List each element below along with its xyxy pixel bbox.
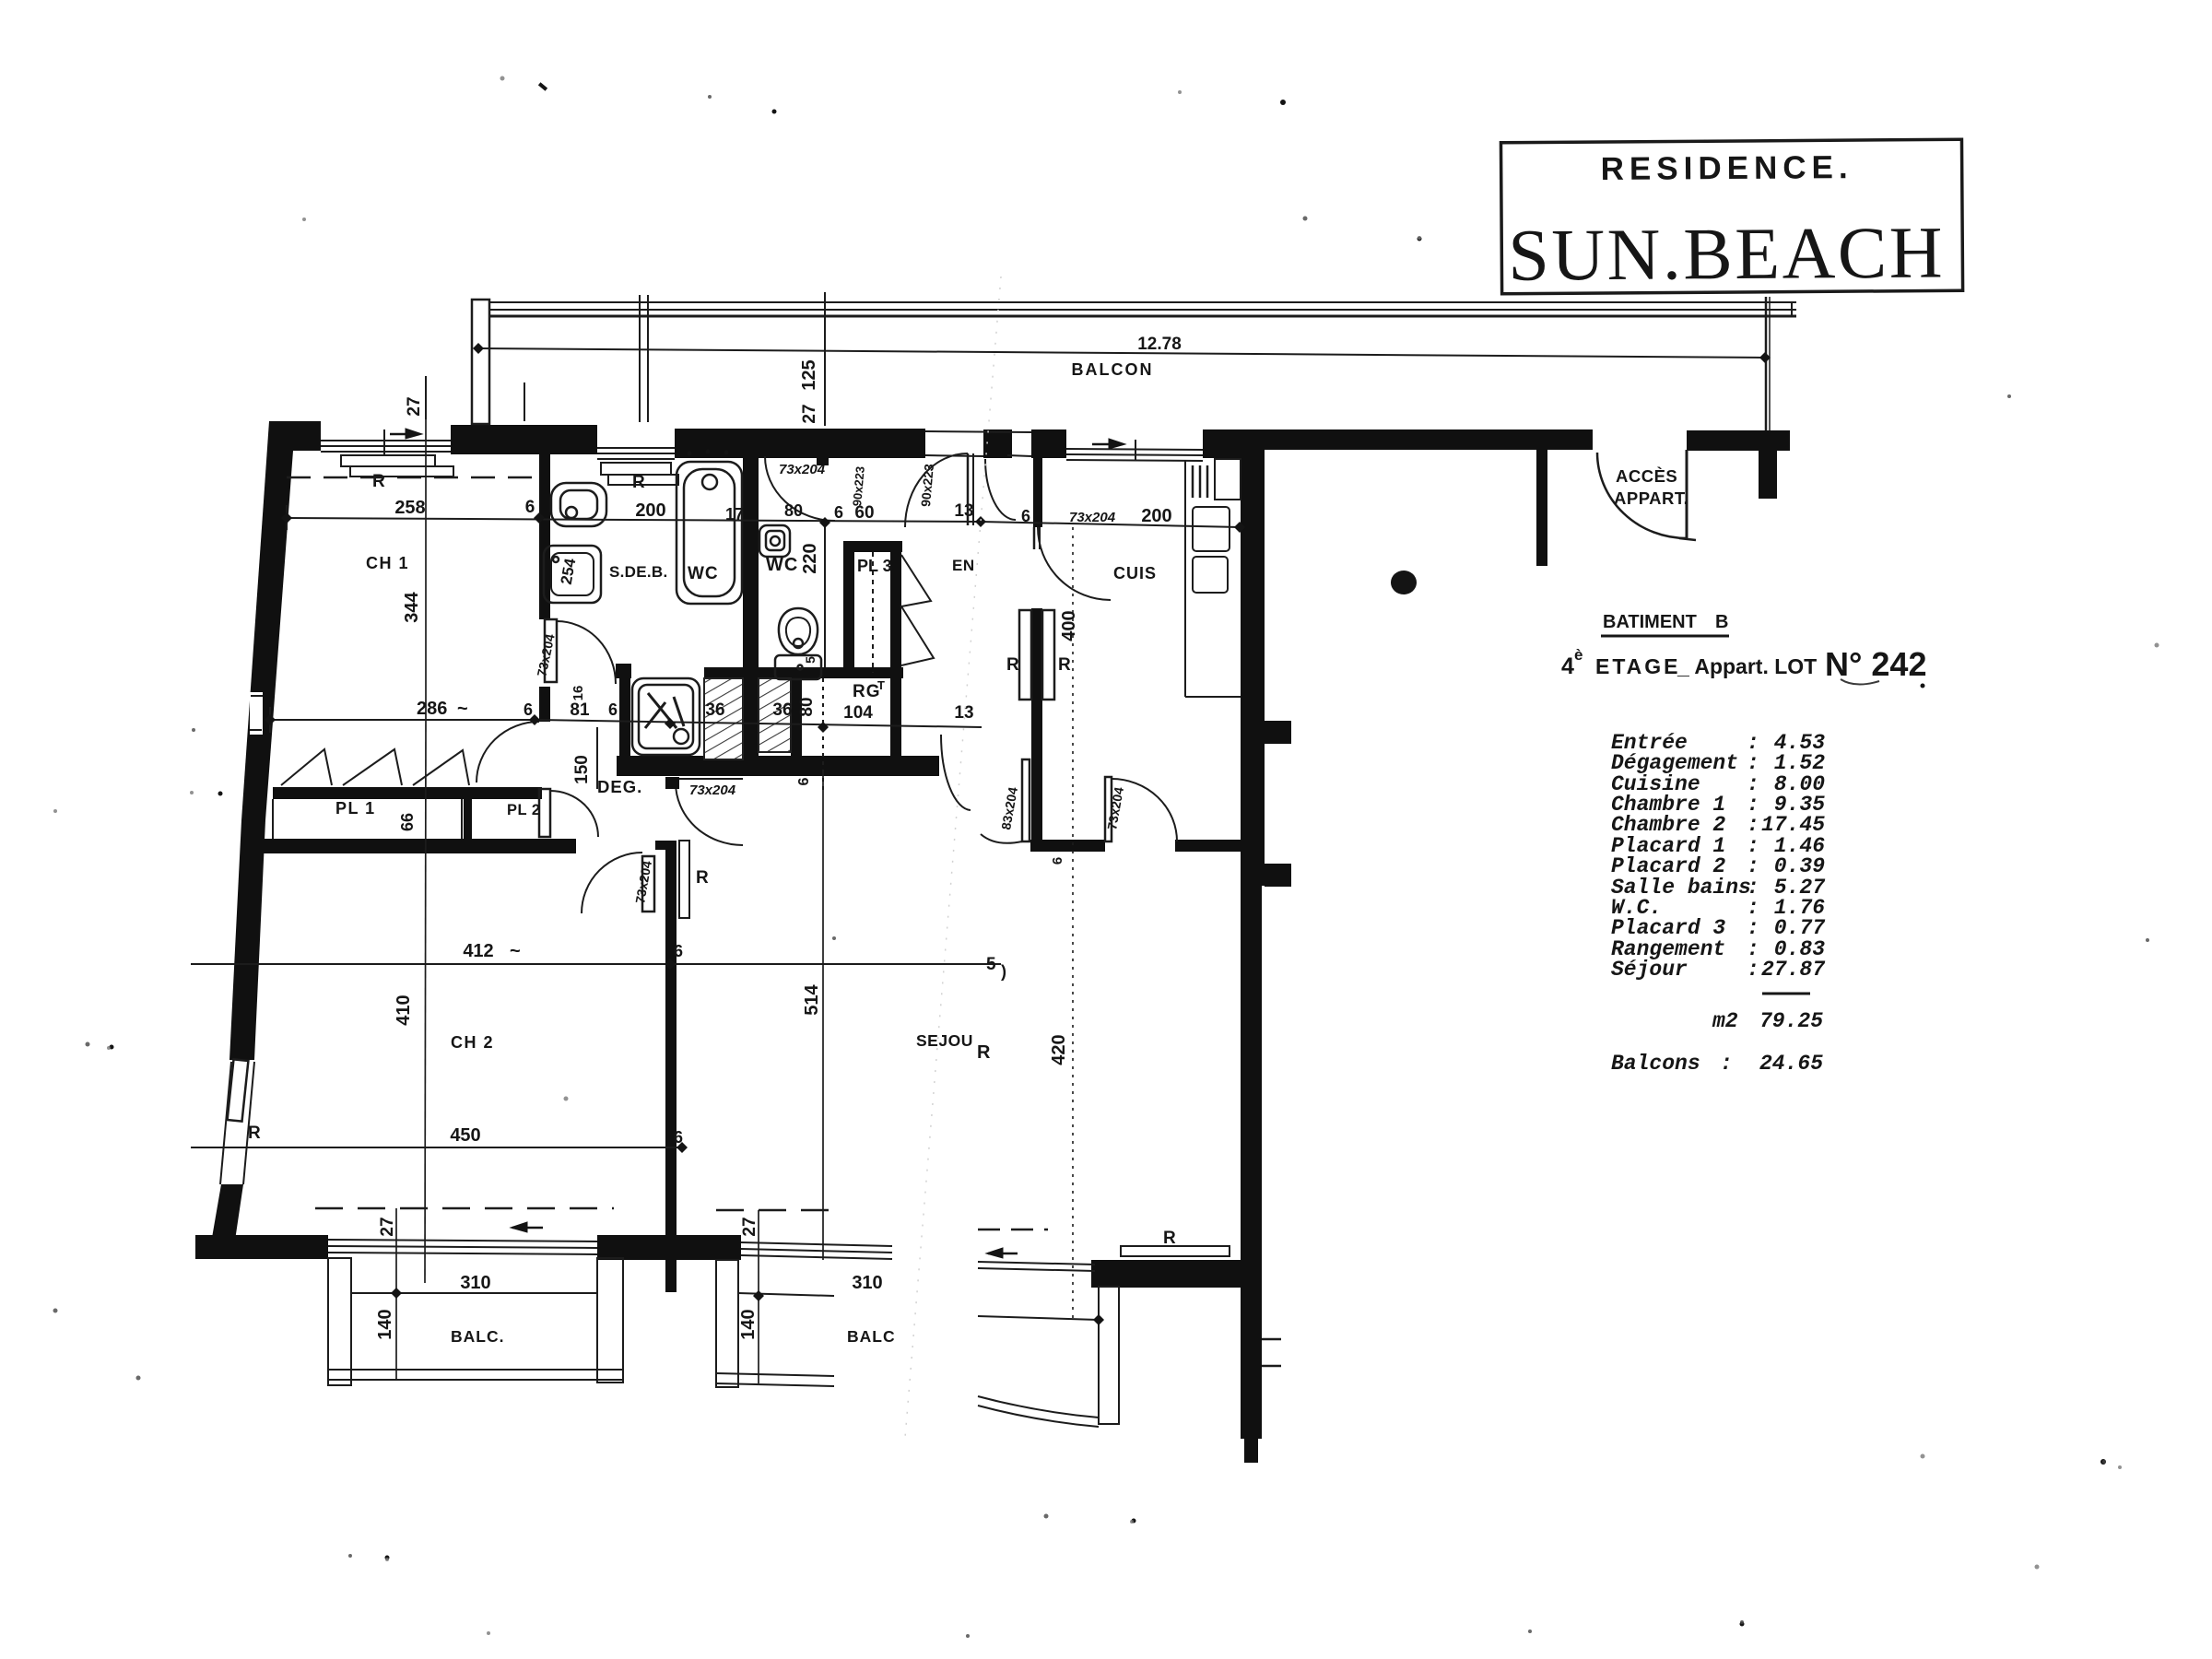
svg-text:PL 3: PL 3 xyxy=(857,557,892,575)
svg-text:~: ~ xyxy=(457,699,468,719)
svg-text:5: 5 xyxy=(803,656,818,664)
svg-text:150: 150 xyxy=(572,755,592,784)
svg-text:79.25: 79.25 xyxy=(1759,1009,1823,1033)
svg-text:36: 36 xyxy=(705,700,724,720)
svg-text:CH 2: CH 2 xyxy=(451,1033,494,1052)
svg-text:BALC.: BALC. xyxy=(451,1327,504,1346)
svg-text:36: 36 xyxy=(772,700,792,720)
svg-text:~: ~ xyxy=(510,941,521,961)
svg-text:450: 450 xyxy=(450,1125,480,1146)
svg-text:6: 6 xyxy=(674,942,683,960)
svg-text:R: R xyxy=(632,473,645,492)
svg-text:R: R xyxy=(977,1042,991,1063)
svg-text:286: 286 xyxy=(417,699,447,719)
svg-text:412: 412 xyxy=(463,941,493,961)
svg-text:T: T xyxy=(877,678,885,692)
svg-text:4: 4 xyxy=(1561,653,1574,679)
svg-text:ACCÈS: ACCÈS xyxy=(1616,466,1677,486)
svg-text:6: 6 xyxy=(524,700,533,719)
svg-text:6: 6 xyxy=(1050,857,1065,865)
svg-text:125: 125 xyxy=(799,359,819,390)
svg-text:200: 200 xyxy=(635,500,665,521)
svg-text:S.DE.B.: S.DE.B. xyxy=(609,563,668,581)
svg-text:WC: WC xyxy=(688,564,719,583)
svg-text:EN: EN xyxy=(952,557,975,574)
svg-text:24.65: 24.65 xyxy=(1759,1052,1823,1076)
svg-text:RG: RG xyxy=(853,682,881,701)
svg-text:258: 258 xyxy=(394,498,425,518)
svg-text:DEG.: DEG. xyxy=(597,777,642,796)
svg-text:PL 1: PL 1 xyxy=(335,799,376,818)
svg-text:17: 17 xyxy=(725,505,744,524)
svg-text:12.78: 12.78 xyxy=(1137,335,1182,354)
svg-text:27: 27 xyxy=(405,396,424,416)
svg-text:400: 400 xyxy=(1059,610,1079,641)
svg-text:CH 1: CH 1 xyxy=(366,554,409,572)
svg-text:SUN.BEACH: SUN.BEACH xyxy=(1508,212,1945,296)
svg-text::: : xyxy=(1720,1052,1733,1076)
svg-text:WC: WC xyxy=(766,555,798,575)
svg-text:80: 80 xyxy=(797,697,817,716)
svg-text:27: 27 xyxy=(378,1217,397,1236)
svg-text:Séjour: Séjour xyxy=(1611,958,1688,982)
svg-text:27.87: 27.87 xyxy=(1761,958,1826,982)
svg-text:BALC: BALC xyxy=(847,1327,896,1346)
svg-text:27: 27 xyxy=(800,404,819,423)
svg-text:66: 66 xyxy=(398,813,417,831)
svg-text:APPART.: APPART. xyxy=(1614,488,1688,508)
svg-text:73x204: 73x204 xyxy=(1069,510,1116,525)
svg-text:R: R xyxy=(372,472,385,491)
svg-text:RESIDENCE.: RESIDENCE. xyxy=(1601,149,1853,187)
svg-text:R: R xyxy=(1163,1229,1176,1248)
svg-text:104: 104 xyxy=(843,703,873,723)
svg-text:Balcons: Balcons xyxy=(1611,1052,1700,1076)
svg-text:73x204: 73x204 xyxy=(689,782,736,798)
svg-text:è: è xyxy=(1574,646,1583,664)
svg-text:140: 140 xyxy=(375,1309,395,1339)
svg-text:81: 81 xyxy=(570,700,590,720)
svg-text:6: 6 xyxy=(525,498,535,517)
svg-text:220: 220 xyxy=(800,543,820,573)
svg-text:27: 27 xyxy=(740,1217,759,1236)
svg-text:13: 13 xyxy=(954,501,973,521)
svg-text:): ) xyxy=(1001,962,1006,981)
svg-text::: : xyxy=(1747,958,1759,982)
svg-text:_ Appart. LOT: _ Appart. LOT xyxy=(1677,654,1817,678)
svg-text:R: R xyxy=(696,868,709,888)
svg-text:BALCON: BALCON xyxy=(1072,360,1154,379)
svg-text:6: 6 xyxy=(1021,507,1030,525)
svg-text:6: 6 xyxy=(796,777,812,785)
svg-text:PL 2: PL 2 xyxy=(507,802,541,818)
svg-text:80: 80 xyxy=(784,501,803,520)
svg-text:310: 310 xyxy=(460,1273,490,1293)
svg-text:R: R xyxy=(1006,655,1019,675)
svg-text:R: R xyxy=(248,1124,261,1143)
svg-text:R: R xyxy=(1058,655,1071,675)
svg-text:SEJOU: SEJOU xyxy=(916,1031,973,1050)
svg-text:m2: m2 xyxy=(1712,1009,1738,1033)
svg-text:13: 13 xyxy=(954,703,973,723)
svg-text:6: 6 xyxy=(608,700,618,719)
svg-text:344: 344 xyxy=(402,591,422,622)
svg-text:200: 200 xyxy=(1141,506,1171,526)
svg-text:5: 5 xyxy=(986,955,996,974)
svg-text:B: B xyxy=(1715,612,1728,632)
svg-text:CUIS: CUIS xyxy=(1113,564,1157,582)
svg-text:420: 420 xyxy=(1049,1034,1069,1065)
svg-text:N° 242: N° 242 xyxy=(1825,645,1926,683)
svg-text:BATIMENT: BATIMENT xyxy=(1603,612,1697,632)
svg-text:16: 16 xyxy=(571,686,586,701)
svg-text:310: 310 xyxy=(852,1273,882,1293)
svg-text:410: 410 xyxy=(394,994,414,1025)
svg-text:ETAGE: ETAGE xyxy=(1595,654,1681,678)
svg-text:514: 514 xyxy=(802,983,822,1015)
svg-text:140: 140 xyxy=(738,1309,759,1339)
svg-text:6: 6 xyxy=(834,503,843,522)
